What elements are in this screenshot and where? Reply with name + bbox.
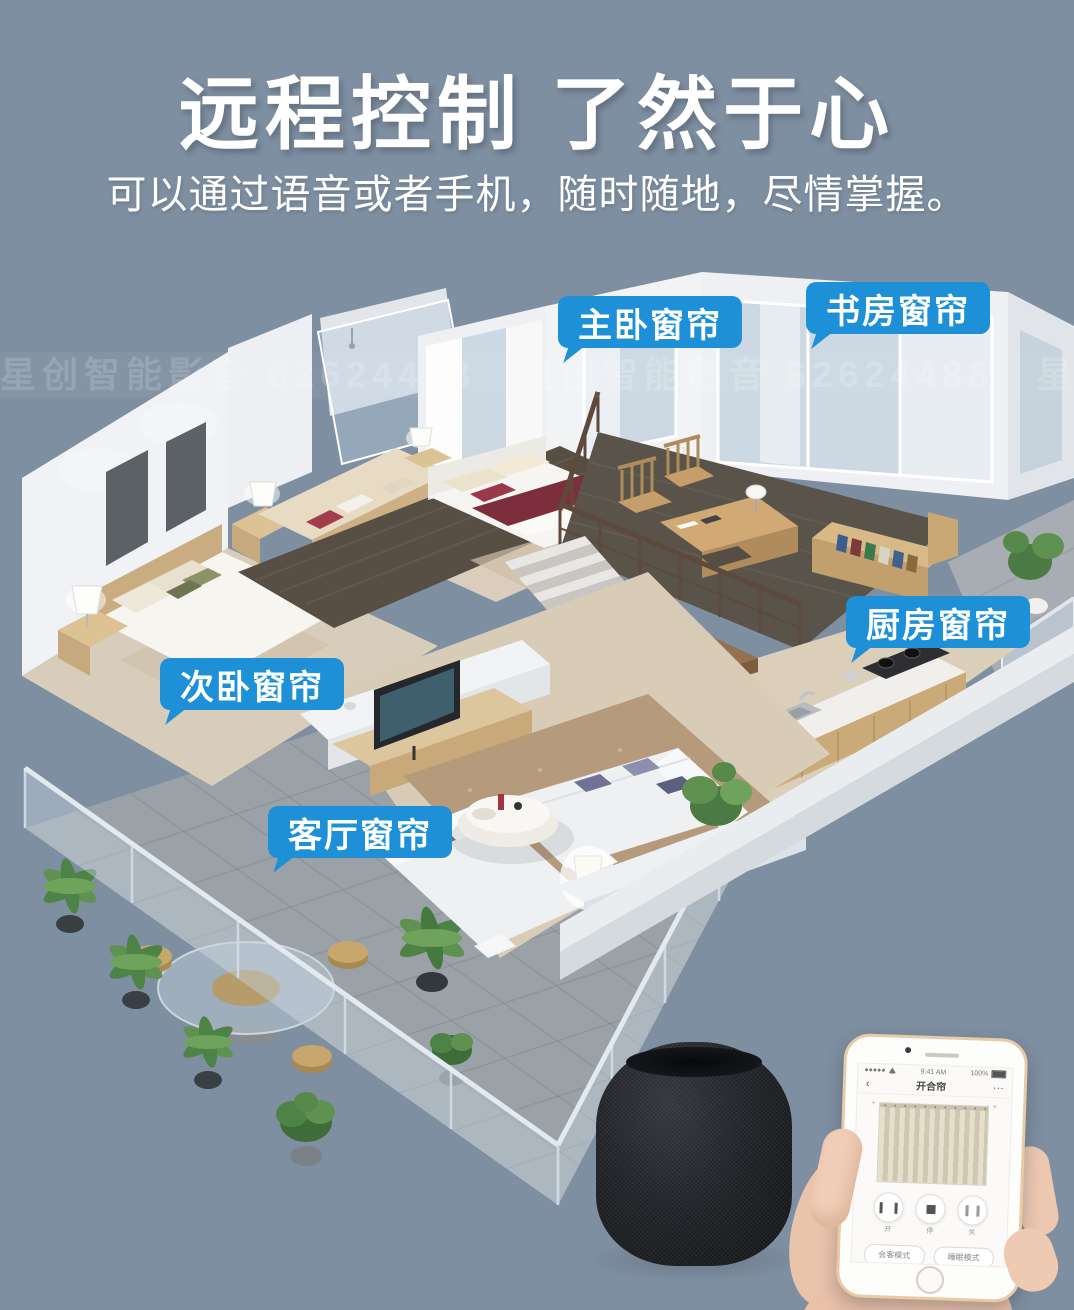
watermark: 星创智能影音 62624488 星创智能影音 62624488 星创智能影音 6… bbox=[0, 352, 1074, 398]
curtain-corner-marker: + bbox=[992, 1102, 997, 1111]
callout-label: 客厅窗帘 bbox=[288, 808, 432, 857]
close-control[interactable]: 关 bbox=[957, 1195, 988, 1238]
mode-buttons: 会客模式 睡眠模式 起床模式 阳光模式 bbox=[851, 1233, 1007, 1267]
signal-dots: ●●●●● bbox=[864, 1066, 885, 1074]
phone-camera-icon bbox=[905, 1047, 911, 1053]
close-button[interactable] bbox=[957, 1195, 988, 1226]
status-time: 9:41 AM bbox=[921, 1068, 947, 1076]
status-battery-percent: 100% bbox=[970, 1070, 988, 1078]
callout-master-bedroom-curtain[interactable]: 主卧窗帘 bbox=[558, 296, 742, 348]
back-icon[interactable]: ‹ bbox=[866, 1077, 870, 1089]
open-control[interactable]: 开 bbox=[873, 1192, 904, 1235]
page-title: 远程控制 了然于心 bbox=[0, 50, 1074, 166]
close-curtain-icon bbox=[965, 1205, 979, 1216]
close-label: 关 bbox=[968, 1227, 975, 1237]
more-icon[interactable]: ··· bbox=[993, 1082, 1004, 1094]
promo-page: 星创智能影音 62624488 星创智能影音 62624488 星创智能影音 6… bbox=[0, 0, 1074, 1310]
app-title: 开合帘 bbox=[916, 1077, 947, 1093]
mode-button-guest[interactable]: 会客模式 bbox=[864, 1244, 925, 1267]
callout-label: 书房窗帘 bbox=[826, 284, 970, 333]
open-label: 开 bbox=[884, 1224, 891, 1234]
callout-label: 次卧窗帘 bbox=[180, 660, 324, 709]
callout-label: 厨房窗帘 bbox=[866, 598, 1010, 647]
callout-living-room-curtain[interactable]: 客厅窗帘 bbox=[268, 806, 452, 858]
stop-label: 停 bbox=[926, 1226, 933, 1236]
stop-control[interactable]: 停 bbox=[915, 1193, 946, 1236]
callout-second-bedroom-curtain[interactable]: 次卧窗帘 bbox=[160, 658, 344, 710]
curtain-preview: + + bbox=[876, 1102, 989, 1186]
stop-button[interactable] bbox=[915, 1193, 946, 1224]
stop-icon bbox=[926, 1204, 935, 1213]
phone-in-hand: ●●●●● 9:41 AM 100% ‹ 开合帘 ··· + + bbox=[800, 1030, 1074, 1310]
callout-label: 主卧窗帘 bbox=[578, 298, 722, 347]
callout-study-curtain[interactable]: 书房窗帘 bbox=[806, 282, 990, 334]
smartphone: ●●●●● 9:41 AM 100% ‹ 开合帘 ··· + + bbox=[835, 1033, 1028, 1303]
smart-speaker bbox=[596, 1042, 792, 1266]
phone-earpiece-icon bbox=[925, 1053, 959, 1058]
callout-kitchen-curtain[interactable]: 厨房窗帘 bbox=[846, 596, 1030, 648]
battery-icon bbox=[991, 1070, 1006, 1079]
wifi-icon bbox=[888, 1067, 896, 1073]
curtain-graphic bbox=[876, 1102, 989, 1186]
phone-screen: ●●●●● 9:41 AM 100% ‹ 开合帘 ··· + + bbox=[851, 1062, 1014, 1267]
open-curtain-icon bbox=[879, 1202, 897, 1214]
curtain-corner-marker: + bbox=[871, 1098, 876, 1107]
mode-button-sleep[interactable]: 睡眠模式 bbox=[933, 1246, 994, 1268]
home-button[interactable] bbox=[916, 1266, 945, 1295]
curtain-controls: 开 停 关 bbox=[853, 1191, 1008, 1238]
page-subtitle: 可以通过语音或者手机，随时随地，尽情掌握。 bbox=[0, 162, 1074, 220]
open-button[interactable] bbox=[873, 1192, 904, 1223]
